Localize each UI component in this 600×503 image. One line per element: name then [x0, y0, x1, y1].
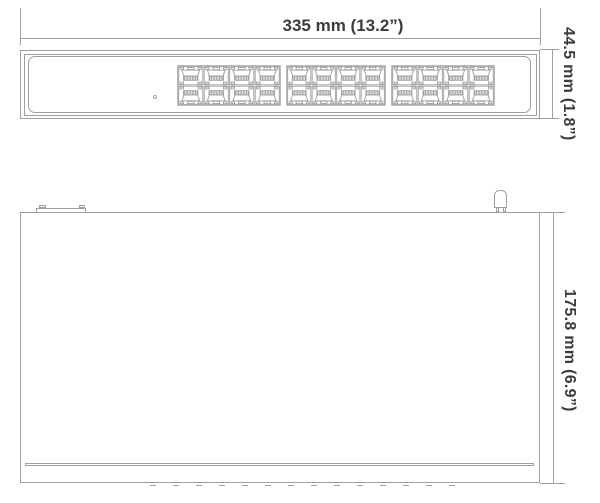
depth-dimension-line [553, 212, 554, 483]
connector-stub [494, 190, 508, 208]
mounting-clip-tab-left [39, 205, 46, 209]
depth-dimension-label: 175.8 mm (6.9”) [560, 289, 578, 412]
connector-stub-foot-right [503, 207, 506, 212]
rear-panel-band [25, 463, 534, 467]
chassis-outline [20, 212, 540, 483]
connector-stub-foot-left [496, 207, 499, 212]
top-view: 175.8 mm (6.9”) [0, 0, 600, 503]
vent-dashes [150, 485, 462, 487]
mounting-clip [36, 208, 86, 213]
mounting-clip-tab-right [79, 205, 86, 209]
depth-tick-bottom [540, 483, 565, 484]
